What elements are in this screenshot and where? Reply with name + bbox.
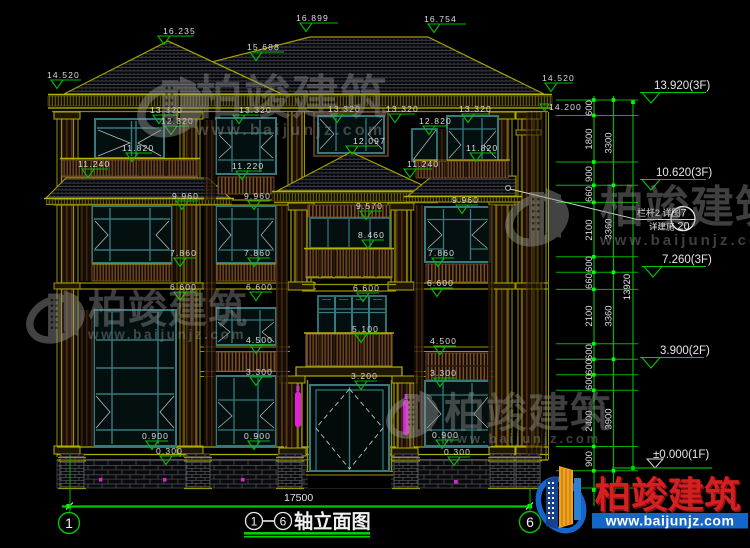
svg-text:11.220: 11.220 — [232, 161, 264, 171]
svg-text:13.320: 13.320 — [459, 104, 492, 114]
svg-text:4.500: 4.500 — [430, 336, 457, 346]
svg-text:10.620(3F): 10.620(3F) — [656, 167, 712, 179]
svg-text:6: 6 — [280, 515, 287, 529]
svg-text:www.baijunjz.com: www.baijunjz.com — [195, 122, 385, 139]
svg-text:4.500: 4.500 — [246, 335, 273, 345]
svg-text:0.300: 0.300 — [444, 447, 471, 457]
svg-text:3.900(2F): 3.900(2F) — [660, 345, 710, 357]
svg-text:11.240: 11.240 — [407, 159, 439, 169]
svg-text:0.900: 0.900 — [142, 431, 169, 441]
svg-text:9.960: 9.960 — [452, 195, 479, 205]
svg-text:8.460: 8.460 — [358, 230, 385, 240]
svg-text:5.100: 5.100 — [352, 324, 379, 334]
svg-text:600: 600 — [584, 374, 595, 390]
svg-text:3300: 3300 — [604, 132, 615, 153]
svg-text:3360: 3360 — [604, 305, 615, 326]
svg-text:16.899: 16.899 — [296, 13, 329, 23]
svg-text:www.baijunjz.com: www.baijunjz.com — [599, 232, 750, 249]
svg-text:1800: 1800 — [584, 128, 595, 149]
svg-text:1: 1 — [251, 515, 258, 529]
svg-text:3.200: 3.200 — [351, 371, 378, 381]
svg-text:14.520: 14.520 — [47, 70, 80, 80]
svg-text:6: 6 — [526, 514, 534, 530]
svg-text:660: 660 — [584, 186, 595, 202]
svg-text:600: 600 — [584, 256, 595, 272]
svg-text:2100: 2100 — [584, 305, 595, 326]
svg-text:11.240: 11.240 — [78, 159, 110, 169]
svg-text:柏竣建筑: 柏竣建筑 — [88, 289, 248, 332]
svg-text:6.600: 6.600 — [246, 282, 273, 292]
svg-text:900: 900 — [584, 166, 595, 182]
svg-text:600: 600 — [584, 344, 595, 360]
svg-text:14.520: 14.520 — [542, 73, 575, 83]
svg-text:3.300: 3.300 — [430, 368, 457, 378]
svg-text:9.960: 9.960 — [172, 191, 199, 201]
svg-text:9.570: 9.570 — [356, 201, 383, 211]
svg-text:柏竣建筑: 柏竣建筑 — [196, 71, 388, 124]
svg-text:7.860: 7.860 — [428, 248, 455, 258]
svg-text:14.200: 14.200 — [549, 102, 582, 112]
svg-text:13.320: 13.320 — [386, 104, 419, 114]
svg-text:7.860: 7.860 — [170, 248, 197, 258]
svg-text:3.300: 3.300 — [246, 367, 273, 377]
svg-text:www.baijunjz.com: www.baijunjz.com — [87, 327, 246, 342]
svg-text:柏竣建筑: 柏竣建筑 — [444, 390, 612, 436]
svg-text:12.820: 12.820 — [419, 116, 452, 126]
svg-text:16.235: 16.235 — [163, 26, 196, 36]
svg-text:7.860: 7.860 — [244, 248, 271, 258]
svg-text:6.600: 6.600 — [427, 278, 454, 288]
svg-text:11.820: 11.820 — [122, 143, 154, 153]
svg-text:0.900: 0.900 — [244, 431, 271, 441]
svg-text:15.688: 15.688 — [247, 42, 280, 52]
svg-text:900: 900 — [584, 451, 595, 467]
svg-text:7.260(3F): 7.260(3F) — [662, 254, 712, 266]
svg-text:2100: 2100 — [584, 219, 595, 240]
svg-text:6.600: 6.600 — [353, 283, 380, 293]
svg-text:600: 600 — [584, 359, 595, 375]
svg-text:600: 600 — [584, 100, 595, 116]
svg-text:9.960: 9.960 — [244, 191, 271, 201]
svg-text:轴立面图: 轴立面图 — [294, 510, 371, 533]
svg-text:www.baijunjz.com: www.baijunjz.com — [443, 431, 601, 446]
svg-text:13.920(3F): 13.920(3F) — [654, 80, 710, 92]
svg-text:660: 660 — [584, 273, 595, 289]
svg-text:柏竣建筑: 柏竣建筑 — [600, 183, 750, 232]
svg-text:16.754: 16.754 — [424, 14, 457, 24]
svg-text:17500: 17500 — [284, 492, 313, 504]
svg-text:1: 1 — [65, 515, 73, 531]
svg-text:13920: 13920 — [622, 274, 633, 300]
svg-text:11.820: 11.820 — [466, 143, 498, 153]
svg-text:0.300: 0.300 — [156, 446, 183, 456]
svg-text:柏竣建筑: 柏竣建筑 — [595, 475, 741, 516]
svg-text:www.baijunjz.com: www.baijunjz.com — [605, 513, 735, 529]
